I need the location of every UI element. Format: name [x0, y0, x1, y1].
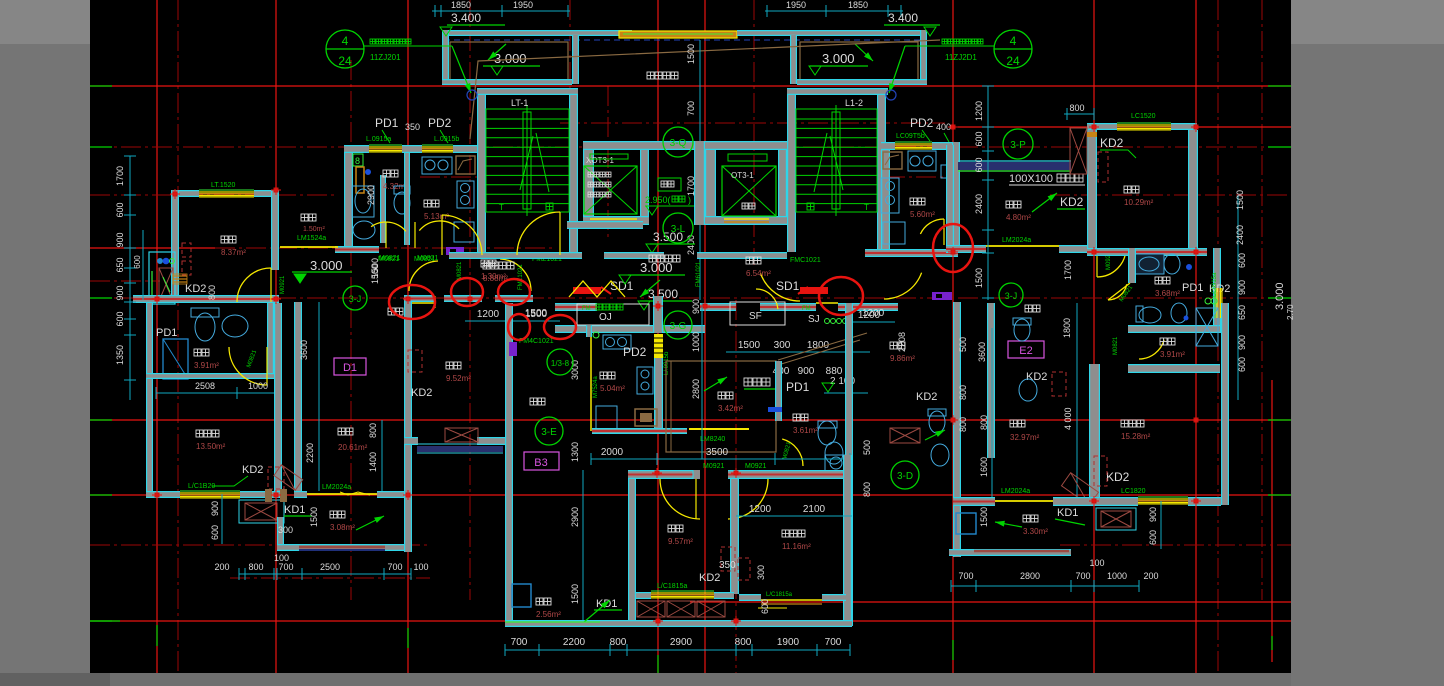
svg-text:1950: 1950 [786, 0, 806, 10]
svg-text:1000: 1000 [691, 332, 701, 352]
svg-text:800: 800 [248, 562, 263, 572]
svg-text:PD1: PD1 [156, 327, 177, 339]
svg-text:M0821: M0821 [379, 255, 401, 262]
svg-text:2400: 2400 [686, 235, 696, 255]
svg-text:2100: 2100 [803, 504, 826, 515]
svg-text:600: 600 [760, 599, 770, 614]
svg-text:LC1820: LC1820 [1121, 488, 1146, 495]
svg-text:9.52m²: 9.52m² [446, 374, 471, 383]
svg-text:600: 600 [210, 525, 220, 540]
svg-text:800: 800 [958, 417, 968, 432]
svg-text:3.61m²: 3.61m² [793, 426, 818, 435]
svg-text:1600: 1600 [979, 457, 989, 477]
svg-text:2800: 2800 [691, 379, 701, 399]
svg-text:3.08m²: 3.08m² [330, 523, 355, 532]
svg-text:600: 600 [974, 131, 984, 146]
svg-text:OT3-1: OT3-1 [731, 171, 754, 180]
svg-text:13.50m²: 13.50m² [196, 442, 226, 451]
svg-text:1500: 1500 [370, 264, 380, 284]
svg-text:9.86m²: 9.86m² [890, 354, 915, 363]
svg-text:M0821: M0821 [1113, 336, 1119, 355]
svg-text:24: 24 [338, 54, 352, 68]
svg-text:L1-2: L1-2 [845, 98, 863, 108]
svg-text:900: 900 [798, 366, 815, 377]
svg-text:1200: 1200 [974, 101, 984, 121]
svg-text:2200: 2200 [305, 443, 315, 463]
svg-text:32.97m²: 32.97m² [1010, 433, 1040, 442]
svg-text:M7524a: M7524a [593, 376, 599, 398]
svg-text:800: 800 [1069, 103, 1084, 113]
svg-text:2.56m²: 2.56m² [536, 610, 561, 619]
svg-text:5.04m²: 5.04m² [600, 384, 625, 393]
svg-text:L/C1815a: L/C1815a [766, 592, 793, 598]
svg-text:2500: 2500 [320, 562, 340, 572]
svg-text:350: 350 [405, 122, 420, 132]
svg-text:L/C1B20: L/C1B20 [188, 483, 215, 490]
svg-text:600: 600 [115, 311, 125, 326]
svg-text:T: T [499, 203, 504, 212]
svg-text:1200: 1200 [477, 309, 500, 320]
svg-text:3.68m²: 3.68m² [1155, 289, 1180, 298]
svg-text:SJ: SJ [808, 314, 820, 325]
svg-text:2.70: 2.70 [1286, 304, 1295, 320]
svg-text:1300: 1300 [570, 442, 580, 462]
svg-text:700: 700 [511, 637, 528, 648]
svg-text:800: 800 [207, 285, 217, 300]
svg-text:100: 100 [1089, 558, 1104, 568]
svg-text:KD2: KD2 [242, 464, 263, 476]
svg-text:3.000: 3.000 [1274, 282, 1286, 310]
svg-text:100X100: 100X100 [1009, 173, 1053, 185]
svg-text:LM2024a: LM2024a [1001, 488, 1030, 495]
svg-text:1/3-8: 1/3-8 [551, 359, 570, 368]
svg-text:1500: 1500 [1235, 190, 1245, 210]
svg-text:11.16m²: 11.16m² [782, 542, 811, 551]
svg-text:1700: 1700 [115, 166, 125, 186]
svg-text:1500: 1500 [570, 584, 580, 604]
svg-text:): ) [688, 195, 691, 205]
svg-text:4 000: 4 000 [1063, 407, 1073, 430]
svg-text:1500: 1500 [974, 268, 984, 288]
svg-text:1500: 1500 [686, 44, 696, 64]
svg-text:20.61m²: 20.61m² [338, 443, 368, 452]
svg-text:KD2: KD2 [1100, 136, 1124, 150]
svg-text:200: 200 [214, 562, 229, 572]
svg-text:800: 800 [368, 423, 378, 438]
svg-text:3-G: 3-G [670, 321, 687, 332]
svg-text:700: 700 [958, 571, 973, 581]
svg-text:M0821: M0821 [457, 261, 463, 280]
svg-text:SD1: SD1 [776, 279, 800, 293]
svg-text:2400: 2400 [974, 194, 984, 214]
svg-text:5.60m²: 5.60m² [910, 210, 935, 219]
svg-text:800: 800 [735, 637, 752, 648]
svg-text:1400: 1400 [368, 452, 378, 472]
svg-text:OJ: OJ [599, 312, 612, 323]
svg-text:900: 900 [115, 232, 125, 247]
svg-text:LM2024a: LM2024a [1002, 237, 1031, 244]
svg-text:3600: 3600 [299, 340, 309, 360]
svg-text:1200: 1200 [862, 308, 885, 319]
svg-text:600: 600 [133, 255, 142, 269]
svg-text:FM61021: FM61021 [696, 261, 702, 287]
svg-text:4: 4 [342, 34, 349, 48]
svg-text:3.91m²: 3.91m² [1160, 350, 1185, 359]
svg-text:3.400: 3.400 [451, 11, 481, 25]
svg-text:3.30m²: 3.30m² [1023, 527, 1048, 536]
svg-text:300: 300 [278, 525, 293, 535]
svg-text:15.28m²: 15.28m² [1121, 432, 1151, 441]
svg-text:3-E: 3-E [541, 427, 557, 438]
svg-text:600: 600 [974, 157, 984, 172]
svg-text:8.37m²: 8.37m² [221, 248, 246, 257]
svg-text:LM8240: LM8240 [700, 436, 725, 443]
svg-text:300: 300 [774, 340, 791, 351]
svg-text:700: 700 [825, 637, 842, 648]
svg-text:11ZJ2D1: 11ZJ2D1 [945, 53, 977, 62]
svg-text:900: 900 [210, 501, 220, 516]
svg-text:LC09T5b: LC09T5b [896, 133, 925, 140]
svg-text:3-J: 3-J [349, 294, 362, 304]
svg-text:D1: D1 [343, 362, 357, 374]
svg-text:PD2: PD2 [428, 116, 452, 130]
svg-text:2000: 2000 [601, 447, 624, 458]
svg-text:3.000: 3.000 [640, 260, 673, 275]
svg-text:900: 900 [115, 285, 125, 300]
svg-text:700: 700 [278, 562, 293, 572]
svg-text:3.400: 3.400 [888, 11, 918, 25]
svg-text:M0921: M0921 [280, 275, 286, 294]
svg-text:LM1524a: LM1524a [297, 235, 326, 242]
svg-text:600: 600 [1148, 530, 1158, 545]
svg-text:2.950(: 2.950( [645, 195, 671, 205]
svg-text:LM2024a: LM2024a [322, 484, 351, 491]
svg-text:KD2: KD2 [916, 391, 937, 403]
svg-text:FM: FM [802, 306, 811, 312]
svg-text:1850: 1850 [451, 0, 471, 10]
svg-text:11ZJ201: 11ZJ201 [370, 53, 401, 62]
svg-text:350: 350 [719, 560, 736, 571]
svg-text:3-Q: 3-Q [670, 138, 687, 149]
svg-text:3-J: 3-J [1005, 291, 1018, 301]
svg-text:PD1: PD1 [786, 380, 810, 394]
svg-text:1000: 1000 [248, 381, 268, 391]
svg-text:1500: 1500 [525, 308, 548, 319]
svg-text:1950: 1950 [513, 0, 533, 10]
svg-text:650: 650 [115, 257, 125, 272]
svg-text:4.80m²: 4.80m² [1006, 213, 1031, 222]
svg-text:500: 500 [862, 440, 872, 455]
svg-text:PD1: PD1 [375, 116, 399, 130]
svg-text:800: 800 [979, 415, 989, 430]
svg-text:3.000: 3.000 [310, 258, 343, 273]
svg-text:SD1: SD1 [610, 279, 634, 293]
svg-text:2208: 2208 [897, 332, 907, 352]
svg-text:KD2: KD2 [699, 572, 720, 584]
svg-text:M0921: M0921 [703, 463, 725, 470]
svg-text:3.500: 3.500 [648, 287, 678, 301]
svg-text:1500: 1500 [738, 340, 761, 351]
svg-text:1500: 1500 [979, 507, 989, 527]
svg-text:FMZ1021: FMZ1021 [518, 264, 524, 290]
svg-text:KD2: KD2 [185, 283, 206, 295]
svg-text:LT.1520: LT.1520 [211, 182, 235, 189]
svg-text:800: 800 [958, 385, 968, 400]
svg-text:KD2: KD2 [1026, 371, 1047, 383]
svg-text:200: 200 [1143, 571, 1158, 581]
svg-text:3000: 3000 [570, 360, 580, 380]
svg-text:500: 500 [958, 337, 968, 352]
svg-text:9.57m²: 9.57m² [668, 537, 693, 546]
svg-text:900: 900 [691, 299, 701, 314]
svg-text:1000: 1000 [1107, 571, 1127, 581]
svg-text:KD2: KD2 [411, 387, 432, 399]
svg-text:2508: 2508 [195, 381, 215, 391]
svg-text:T: T [864, 203, 869, 212]
svg-text:2900: 2900 [670, 637, 693, 648]
svg-text:1500: 1500 [309, 507, 319, 527]
svg-text:KD2: KD2 [1060, 195, 1084, 209]
svg-text:M0821: M0821 [417, 255, 439, 262]
svg-text:1.50m²: 1.50m² [303, 226, 325, 233]
svg-text:E2: E2 [1019, 345, 1032, 357]
svg-text:KD1: KD1 [284, 504, 305, 516]
svg-text:PD1: PD1 [1182, 282, 1203, 294]
svg-text:3.91m²: 3.91m² [194, 361, 219, 370]
svg-text:1850: 1850 [848, 0, 868, 10]
svg-text:L/C1815a: L/C1815a [657, 583, 687, 590]
svg-text:1200: 1200 [749, 504, 772, 515]
svg-text:LC1520: LC1520 [1131, 113, 1156, 120]
svg-text:300: 300 [756, 565, 766, 580]
svg-text:2200: 2200 [563, 637, 586, 648]
svg-text:4: 4 [1010, 34, 1017, 48]
svg-text:3600: 3600 [977, 342, 987, 362]
svg-text:3.000: 3.000 [822, 51, 855, 66]
svg-text:100: 100 [413, 562, 428, 572]
svg-text:5.13m²: 5.13m² [424, 212, 449, 221]
svg-text:B3: B3 [534, 457, 547, 469]
svg-text:PD2: PD2 [623, 345, 647, 359]
svg-text:L.0915b: L.0915b [434, 136, 459, 143]
svg-text:3-P: 3-P [1010, 140, 1026, 151]
svg-text:2900: 2900 [366, 185, 376, 205]
svg-text:3-D: 3-D [897, 471, 913, 482]
svg-text:1800: 1800 [1062, 318, 1072, 338]
svg-text:1900: 1900 [777, 637, 800, 648]
svg-text:FMC1021: FMC1021 [790, 257, 821, 264]
svg-text:2400: 2400 [1235, 225, 1245, 245]
svg-text:600: 600 [115, 202, 125, 217]
svg-text:700: 700 [1075, 571, 1090, 581]
svg-text:700: 700 [387, 562, 402, 572]
svg-text:KD2: KD2 [1106, 470, 1130, 484]
svg-text:800: 800 [610, 637, 627, 648]
svg-text:PD2: PD2 [910, 116, 934, 130]
svg-text:1350: 1350 [115, 345, 125, 365]
svg-text:24: 24 [1006, 54, 1020, 68]
svg-text:6.54m²: 6.54m² [746, 269, 771, 278]
svg-text:LT-1: LT-1 [511, 98, 528, 108]
svg-text:800: 800 [862, 482, 872, 497]
svg-text:KD1: KD1 [1057, 507, 1078, 519]
svg-text:SF: SF [749, 311, 762, 322]
svg-text:10.29m²: 10.29m² [1124, 198, 1154, 207]
svg-text:FM: FM [582, 306, 591, 312]
svg-text:2900: 2900 [570, 507, 580, 527]
svg-text:3.42m²: 3.42m² [718, 404, 743, 413]
svg-text:L/.0915b: L/.0915b [664, 351, 670, 375]
svg-text:M0921: M0921 [745, 463, 767, 470]
svg-text:3500: 3500 [706, 447, 729, 458]
svg-text:700: 700 [686, 101, 696, 116]
svg-text:3-L: 3-L [671, 224, 686, 235]
svg-text:2800: 2800 [1020, 571, 1040, 581]
svg-text:1700: 1700 [1063, 260, 1073, 280]
svg-text:8: 8 [355, 156, 360, 166]
svg-text:900: 900 [1148, 507, 1158, 522]
